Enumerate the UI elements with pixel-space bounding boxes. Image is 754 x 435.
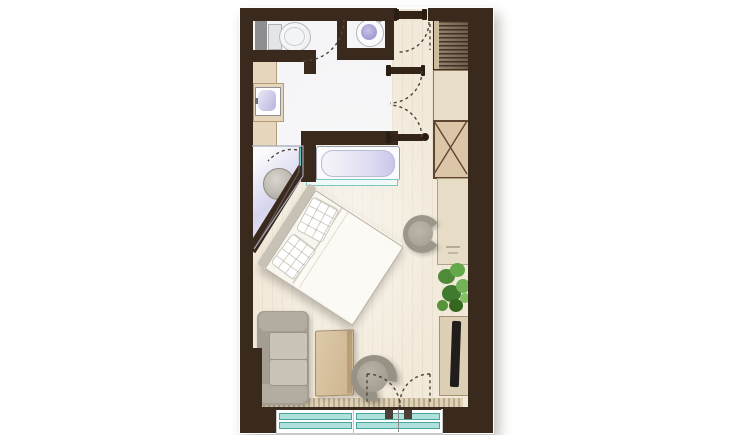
double-door-knob [421, 133, 429, 141]
wall-left-thick-lower [253, 348, 262, 407]
window-glazing [279, 413, 352, 420]
wardrobe-side-strip [434, 21, 439, 69]
wall-top-left-segment [240, 8, 397, 21]
double-door-top-cap [421, 65, 425, 76]
window-wall-face-line [276, 407, 353, 410]
wall-basin-right [385, 20, 394, 60]
sofa-seat-cushion [269, 332, 308, 360]
sofa-arm-bottom [259, 384, 307, 403]
washbasin-bowl [361, 24, 377, 40]
desk-chair-seat [408, 221, 433, 246]
french-door-stile [385, 410, 393, 419]
plant-leaf [450, 263, 465, 277]
double-door-bottom-hinge [386, 132, 391, 143]
entry-door-leaf [397, 11, 424, 19]
double-door-top-leaf [390, 67, 424, 74]
window-glazing [279, 422, 352, 429]
french-doors-wall-face-line [353, 407, 441, 410]
french-door-meeting-line [398, 409, 399, 432]
entry-door-jamb [394, 9, 399, 20]
armchair-seat [357, 361, 388, 392]
vanity-sink-basin [258, 90, 276, 111]
double-door-bottom-leaf [390, 134, 424, 141]
bathtub-glass-partition [306, 179, 398, 186]
wall-wc-jamb [304, 50, 316, 74]
desk-item-mark [446, 246, 460, 248]
desk-item-mark2 [448, 252, 458, 254]
plant-leaf [437, 300, 448, 311]
double-door-top-hinge [386, 65, 391, 76]
plant [430, 263, 470, 315]
bathtub-inner [321, 150, 395, 177]
storage-bench [433, 120, 472, 179]
floor-plan-canvas [0, 0, 754, 435]
wall-right [468, 8, 493, 433]
sofa-seat-cushion [269, 359, 308, 386]
wall-left [240, 8, 253, 433]
entry-door-jamb [422, 9, 427, 20]
wall-bottom-right-segment [441, 407, 493, 433]
french-door-stile [404, 410, 412, 419]
wall-bottom-left-segment [240, 407, 276, 433]
cabinet [433, 70, 470, 122]
vanity-tap [255, 98, 258, 104]
toilet-bowl-inner [284, 27, 305, 46]
sofa-arm-top [259, 312, 307, 331]
